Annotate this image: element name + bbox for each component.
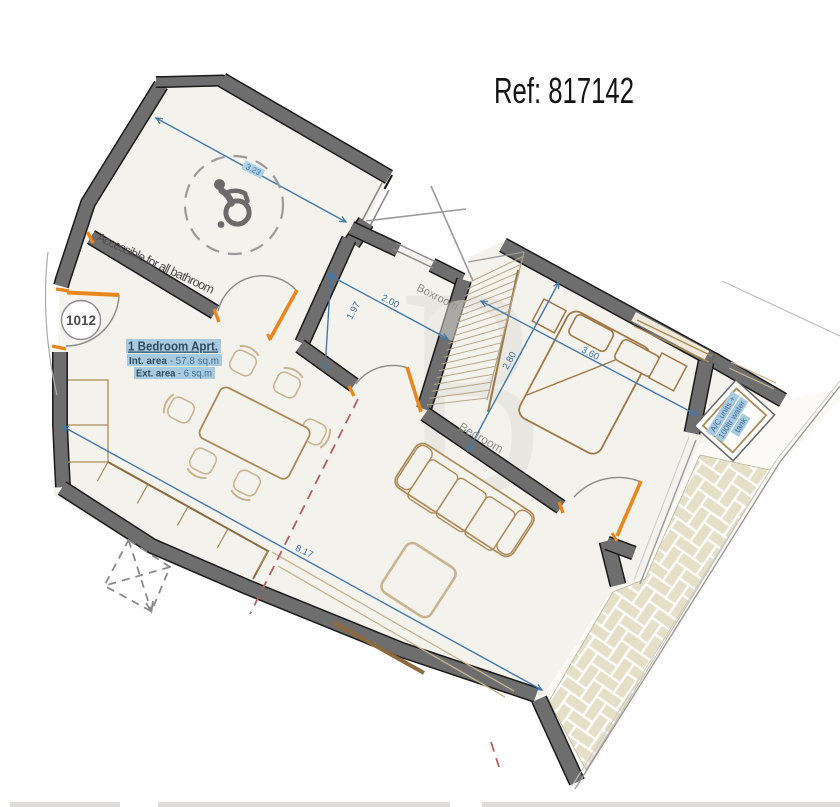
svg-text:1 Bedroom Aprt.: 1 Bedroom Aprt. (128, 340, 218, 354)
svg-text:Int. area - 57.8 sq.m: Int. area - 57.8 sq.m (129, 355, 219, 367)
svg-text:1012: 1012 (66, 313, 96, 328)
svg-text:Ref: 817142: Ref: 817142 (494, 70, 634, 111)
svg-text:Ext. area - 6 sq.m: Ext. area - 6 sq.m (136, 368, 212, 380)
